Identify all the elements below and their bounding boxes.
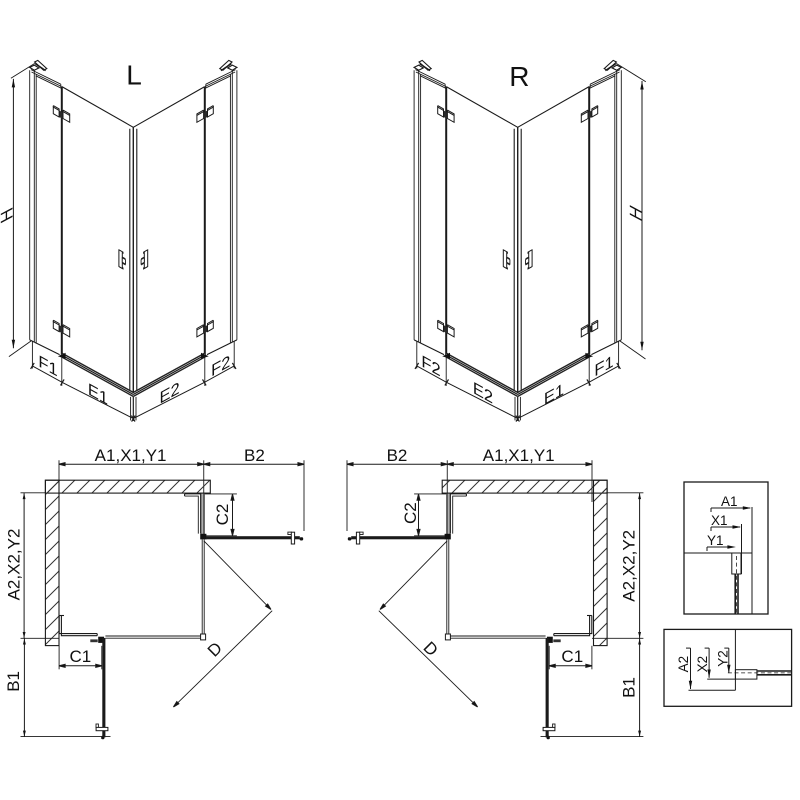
svg-text:B2: B2 bbox=[244, 446, 265, 465]
svg-text:A1,X1,Y1: A1,X1,Y1 bbox=[483, 446, 555, 465]
svg-text:C1: C1 bbox=[70, 647, 92, 666]
svg-text:Y2: Y2 bbox=[715, 650, 730, 667]
svg-text:C2: C2 bbox=[401, 502, 420, 524]
svg-text:A1: A1 bbox=[721, 494, 738, 509]
svg-text:A1,X1,Y1: A1,X1,Y1 bbox=[95, 446, 167, 465]
svg-text:B1: B1 bbox=[619, 677, 638, 698]
svg-text:Y1: Y1 bbox=[707, 533, 724, 548]
svg-text:R: R bbox=[509, 61, 529, 92]
svg-text:A2: A2 bbox=[676, 656, 691, 673]
svg-text:B2: B2 bbox=[387, 446, 408, 465]
svg-text:C2: C2 bbox=[213, 504, 232, 526]
svg-text:X1: X1 bbox=[711, 513, 728, 528]
svg-text:A2,X2,Y2: A2,X2,Y2 bbox=[4, 529, 23, 601]
svg-text:B1: B1 bbox=[4, 671, 23, 692]
svg-text:C1: C1 bbox=[561, 647, 583, 666]
svg-text:X2: X2 bbox=[695, 656, 710, 673]
svg-text:A2,X2,Y2: A2,X2,Y2 bbox=[619, 530, 638, 602]
svg-text:L: L bbox=[126, 60, 142, 91]
